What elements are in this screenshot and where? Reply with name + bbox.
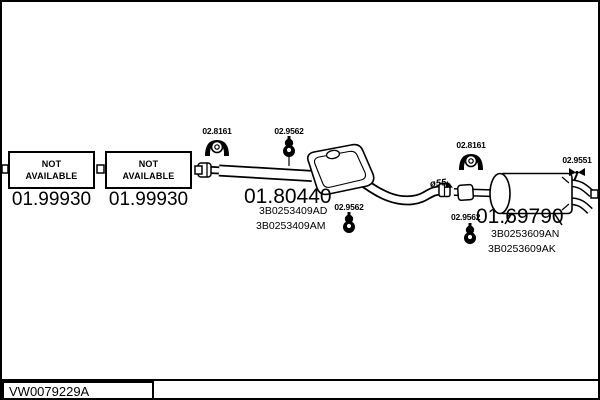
connector-square-front — [195, 166, 202, 174]
clamp-rear-label: 02.8161 — [456, 140, 485, 150]
clamp-front-label: 02.8161 — [202, 126, 231, 136]
not-available-line2: AVAILABLE — [26, 170, 78, 182]
drawing-number-box: VW0079229A — [2, 381, 154, 400]
hanger-mid-label: 02.9562 — [334, 202, 363, 212]
not-available-line1: NOT — [139, 158, 159, 170]
rubber-mount-icon — [283, 136, 295, 157]
not-available-box-2: NOT AVAILABLE — [105, 151, 192, 189]
rubber-mount-icon — [464, 223, 476, 244]
hanger-tail-label: 02.9551 — [562, 155, 591, 165]
connector-square-between-boxes — [97, 165, 104, 173]
front-pipe-drawing — [198, 163, 312, 177]
exhaust-parts-diagram: NOT AVAILABLE NOT AVAILABLE 01.99930 01.… — [0, 0, 600, 400]
not-available-box-1: NOT AVAILABLE — [8, 151, 95, 189]
connector-square-tail — [591, 190, 598, 198]
pipe-diameter-label: ø55 — [429, 177, 446, 190]
part-number: 3B0253409AM — [256, 220, 325, 232]
not-available-line1: NOT — [42, 158, 62, 170]
part-ref-front-pipe-left: 01.99930 — [8, 189, 95, 211]
exhaust-clamp-icon — [459, 154, 483, 170]
rubber-mount-icon — [343, 212, 355, 233]
not-available-line2: AVAILABLE — [123, 170, 175, 182]
exhaust-clamp-icon — [205, 140, 229, 156]
part-number: 3B0253409AD — [259, 205, 327, 217]
part-ref-rear-muffler: 01.69790 — [476, 205, 564, 229]
part-number: 3B0253609AN — [491, 228, 559, 240]
drawing-number: VW0079229A — [9, 384, 89, 399]
part-number: 3B0253609AK — [488, 243, 556, 255]
part-ref-front-pipe-right: 01.99930 — [105, 189, 192, 211]
hanger-front-label: 02.9562 — [274, 126, 303, 136]
